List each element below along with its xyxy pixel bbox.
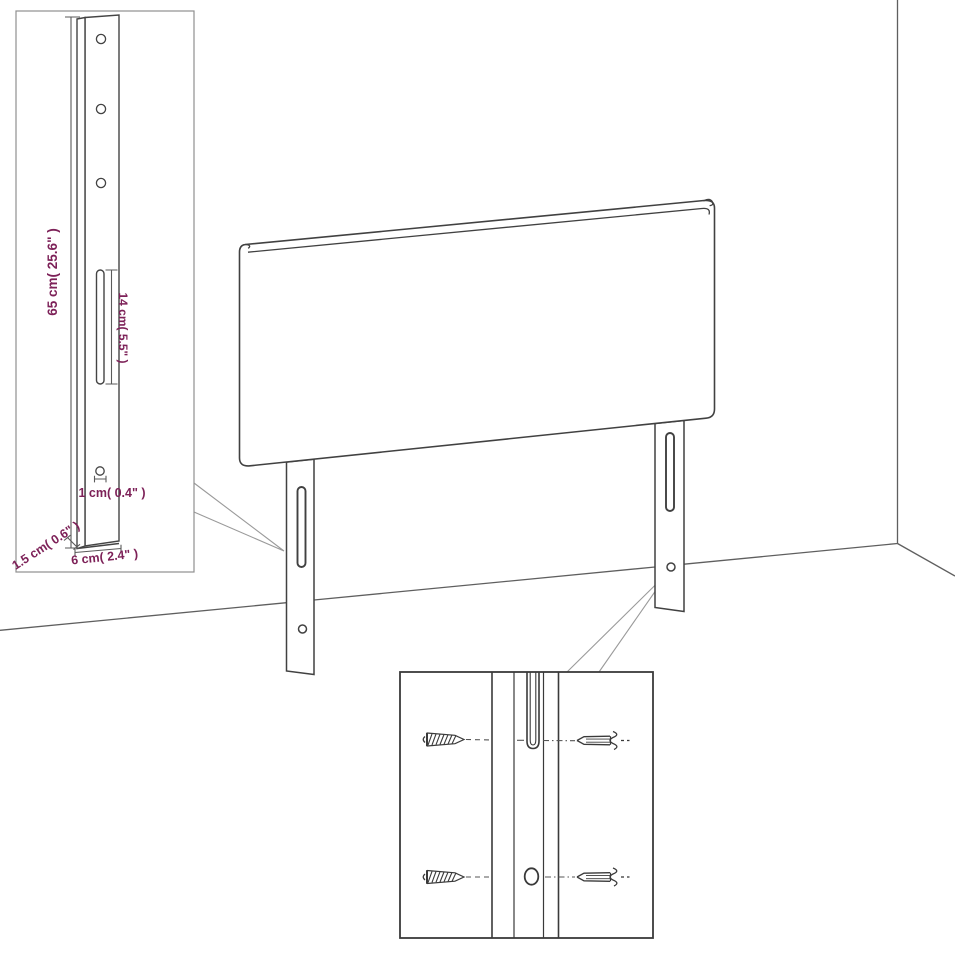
hole-diameter-dimension-label: 1 cm( 0.4" ) <box>78 486 145 500</box>
headboard-panel <box>240 199 715 466</box>
leader-lines <box>194 483 669 672</box>
slot-length-dimension-label: 14 cm( 5.5" ) <box>116 292 130 363</box>
height-dimension-label: 65 cm( 25.6" ) <box>45 228 60 315</box>
width-dimension-label: 6 cm( 2.4" ) <box>70 547 138 568</box>
detail-leader-lines <box>567 572 669 673</box>
left-mount-leg <box>287 459 315 674</box>
headboard <box>240 199 715 674</box>
dimension-diagram: 65 cm( 25.6" ) 14 cm( 5.5" ) 1 cm( 0.4" … <box>0 0 955 955</box>
inset-leader-lines <box>194 483 284 551</box>
bracket-side-view <box>77 15 119 549</box>
screw-slot-dashed-line-top <box>466 740 493 741</box>
zoom-detail-box <box>400 672 653 938</box>
right-mount-leg <box>655 421 684 612</box>
floor-line-right <box>898 544 955 577</box>
inset-panel: 65 cm( 25.6" ) 14 cm( 5.5" ) 1 cm( 0.4" … <box>10 11 194 573</box>
